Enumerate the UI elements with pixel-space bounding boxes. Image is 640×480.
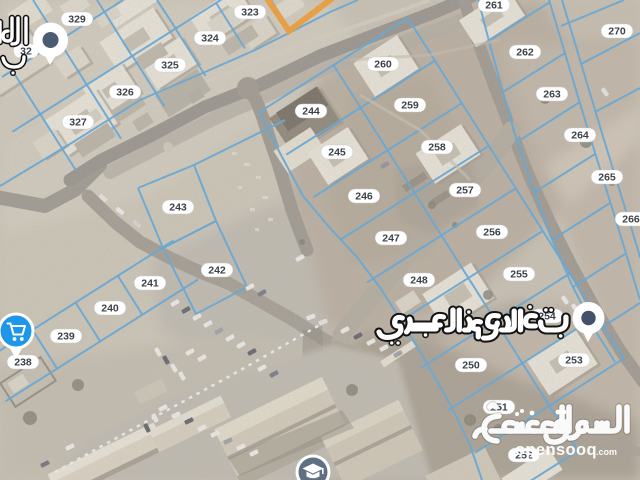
svg-text:243: 243 [169,202,187,214]
svg-text:259: 259 [401,100,419,112]
svg-text:260: 260 [374,59,392,71]
svg-text:240: 240 [101,303,119,315]
svg-text:265: 265 [598,172,616,184]
svg-text:261: 261 [485,0,503,12]
svg-text:258: 258 [428,142,446,154]
svg-text:256: 256 [483,227,501,239]
svg-text:266: 266 [622,214,640,226]
svg-text:246: 246 [355,191,373,203]
svg-text:327: 327 [69,117,87,129]
svg-text:255: 255 [510,269,528,281]
svg-text:247: 247 [382,233,400,245]
svg-text:270: 270 [608,26,626,38]
svg-text:253: 253 [565,355,583,367]
svg-text:257: 257 [456,185,474,197]
svg-text:324: 324 [201,33,219,45]
svg-text:241: 241 [141,278,159,290]
svg-text:250: 250 [462,360,480,372]
svg-text:329: 329 [68,14,86,26]
svg-text:.com: .com [596,447,617,457]
svg-text:263: 263 [543,89,561,101]
svg-text:239: 239 [57,331,75,343]
svg-text:opensooq: opensooq [515,441,597,459]
svg-text:325: 325 [161,60,179,72]
svg-text:326: 326 [116,87,134,99]
svg-text:323: 323 [241,7,259,19]
svg-text:238: 238 [14,357,32,369]
svg-text:242: 242 [208,265,226,277]
svg-text:262: 262 [516,47,534,59]
svg-text:248: 248 [410,275,428,287]
svg-text:245: 245 [328,147,346,159]
svg-text:244: 244 [302,106,320,118]
svg-text:264: 264 [571,130,589,142]
